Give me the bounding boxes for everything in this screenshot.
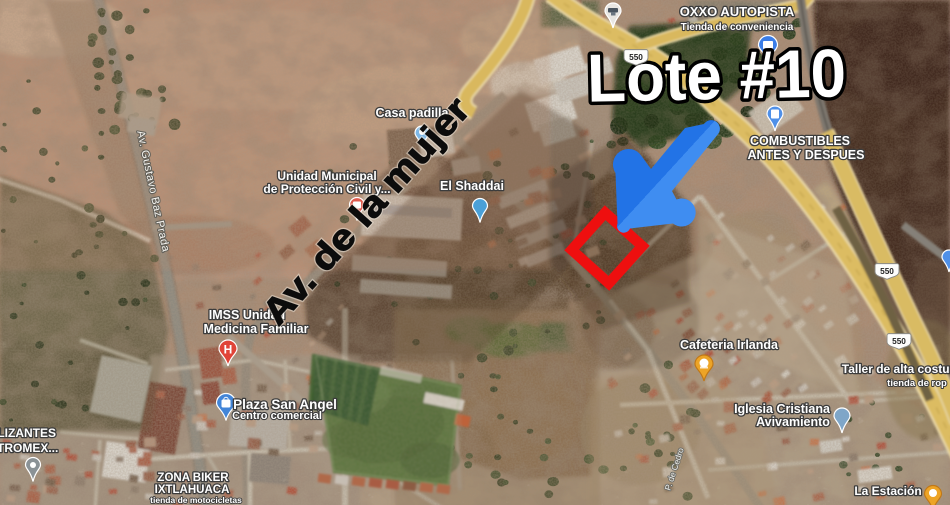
svg-text:Taller de alta costur: Taller de alta costur xyxy=(842,362,950,376)
svg-text:OXXO AUTOPISTA: OXXO AUTOPISTA xyxy=(680,4,795,19)
svg-text:H: H xyxy=(224,343,233,357)
svg-text:TROMEX...: TROMEX... xyxy=(0,441,58,455)
svg-text:Unidad Municipal: Unidad Municipal xyxy=(277,169,376,183)
svg-text:Avivamiento: Avivamiento xyxy=(756,415,830,429)
svg-text:Iglesia Cristiana: Iglesia Cristiana xyxy=(734,402,831,416)
svg-text:COMBUSTIBLES: COMBUSTIBLES xyxy=(750,134,850,148)
svg-text:Centro comercial: Centro comercial xyxy=(232,410,322,422)
svg-text:550: 550 xyxy=(880,267,894,276)
svg-text:Medicina Familiar: Medicina Familiar xyxy=(204,322,309,336)
svg-text:Tienda de conveniencia: Tienda de conveniencia xyxy=(681,22,794,33)
svg-text:ZONA BIKER: ZONA BIKER xyxy=(157,472,229,484)
svg-text:LIZANTES: LIZANTES xyxy=(0,426,56,440)
svg-text:tienda de motocicletas: tienda de motocicletas xyxy=(150,495,242,505)
svg-text:tienda de rop: tienda de rop xyxy=(887,378,947,389)
svg-text:El Shaddai: El Shaddai xyxy=(440,179,504,193)
svg-text:La Estación: La Estación xyxy=(854,484,921,498)
svg-text:550: 550 xyxy=(892,337,906,346)
svg-text:550: 550 xyxy=(629,53,643,62)
svg-text:Lote #10: Lote #10 xyxy=(586,35,847,116)
svg-text:Cafeteria Irlanda: Cafeteria Irlanda xyxy=(680,338,779,352)
svg-text:ANTES Y DESPUES: ANTES Y DESPUES xyxy=(748,148,865,162)
